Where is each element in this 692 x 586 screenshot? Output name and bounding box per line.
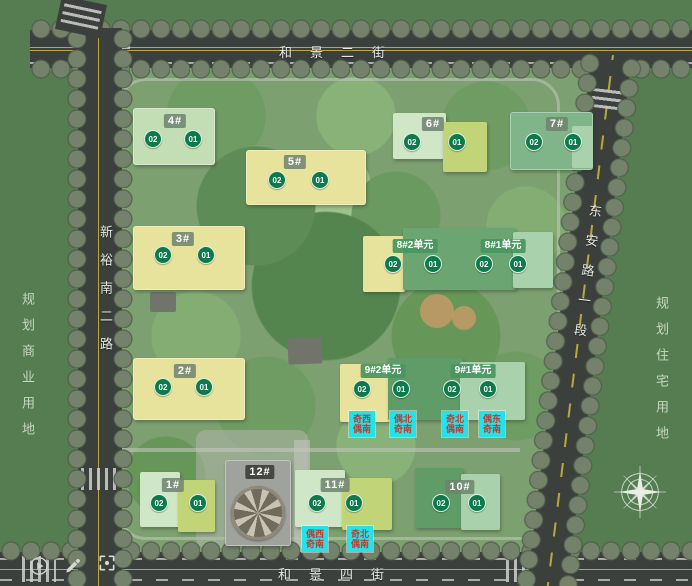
building-label: 1# (162, 478, 184, 492)
building-label: 4# (164, 114, 186, 128)
playground-area (420, 294, 454, 328)
cross-path (120, 448, 520, 452)
orientation-row: 奇北 (442, 414, 468, 424)
building-label: 5# (284, 155, 306, 169)
unit-badge[interactable]: 01 (189, 494, 207, 512)
building-label: 9#2单元 (361, 364, 406, 378)
unit-badge[interactable]: 02 (268, 171, 286, 189)
building-label: 3# (172, 232, 194, 246)
unit-badge[interactable]: 01 (195, 378, 213, 396)
unit-badge[interactable]: 02 (308, 494, 326, 512)
unit-badge[interactable]: 01 (392, 380, 410, 398)
site-plan-map: 东安路一段 和景二街 和景四街 新裕南二路 规划商业用地 规划住宅用地 4# 0… (0, 0, 692, 586)
building-3[interactable]: 3# 02 01 (133, 226, 245, 290)
fan-roof-ornament (231, 486, 285, 540)
unit-badge[interactable]: 02 (432, 494, 450, 512)
orientation-label: 偶北 奇南 (390, 411, 416, 437)
play-icon[interactable] (28, 555, 50, 577)
orientation-label: 奇北 偶南 (347, 526, 373, 552)
orientation-row: 偶南 (442, 424, 468, 434)
unit-badge[interactable]: 02 (144, 130, 162, 148)
unit-badge[interactable]: 02 (154, 246, 172, 264)
building-11[interactable]: 11# 02 01 (295, 470, 392, 530)
orientation-label: 偶东 奇南 (479, 411, 505, 437)
orientation-row: 奇北 (347, 529, 373, 539)
building-label: 8#2单元 (393, 239, 438, 253)
zone-label-commercial: 规划商业用地 (18, 292, 37, 448)
unit-badge[interactable]: 01 (184, 130, 202, 148)
building-label: 11# (321, 478, 350, 492)
building-12[interactable]: 12# (225, 460, 291, 546)
road-name-bottom: 和景四街 (278, 564, 402, 583)
building-label: 12# (245, 465, 274, 479)
orientation-label: 奇北 偶南 (442, 411, 468, 437)
unit-badge[interactable]: 01 (345, 494, 363, 512)
building-1[interactable]: 1# 02 01 (140, 472, 215, 532)
clubhouse-structure (288, 337, 323, 364)
orientation-row: 偶南 (347, 539, 373, 549)
building-label: 9#1单元 (451, 364, 496, 378)
unit-badge[interactable]: 02 (384, 255, 402, 273)
unit-badge[interactable]: 01 (468, 494, 486, 512)
pencil-icon[interactable] (62, 554, 84, 576)
orientation-row: 奇南 (302, 539, 328, 549)
orientation-row: 奇南 (479, 424, 505, 434)
unit-badge[interactable]: 02 (525, 133, 543, 151)
unit-badge[interactable]: 01 (197, 246, 215, 264)
unit-badge[interactable]: 01 (509, 255, 527, 273)
unit-badge[interactable]: 01 (448, 133, 466, 151)
playground-area-2 (452, 306, 476, 330)
building-4[interactable]: 4# 02 01 (133, 108, 215, 165)
orientation-row: 偶西 (302, 529, 328, 539)
unit-badge[interactable]: 02 (150, 494, 168, 512)
orientation-row: 偶南 (349, 424, 375, 434)
building-7[interactable]: 7# 02 01 (510, 112, 593, 170)
building-label: 2# (174, 364, 196, 378)
road-name-top: 和景二街 (279, 42, 403, 61)
unit-badge[interactable]: 01 (424, 255, 442, 273)
orientation-label: 偶西 奇南 (302, 526, 328, 552)
unit-badge[interactable]: 02 (403, 133, 421, 151)
building-10[interactable]: 10# 02 01 (415, 468, 500, 530)
unit-badge[interactable]: 01 (479, 380, 497, 398)
orientation-row: 奇西 (349, 414, 375, 424)
building-label: 6# (422, 117, 444, 131)
orientation-label: 奇西 偶南 (349, 411, 375, 437)
building-label: 8#1单元 (481, 239, 526, 253)
building-8[interactable]: 8#2单元 8#1单元 02 01 02 01 (363, 228, 553, 292)
compass-rose-icon (611, 463, 669, 526)
building-5[interactable]: 5# 02 01 (246, 150, 366, 205)
building-label: 7# (546, 117, 568, 131)
fullscreen-icon[interactable] (96, 552, 118, 574)
unit-badge[interactable]: 02 (353, 380, 371, 398)
tree-row (65, 28, 89, 586)
road-name-left: 新裕南二路 (96, 225, 115, 365)
unit-badge[interactable]: 01 (311, 171, 329, 189)
building-2[interactable]: 2# 02 01 (133, 358, 245, 420)
small-structure (150, 292, 176, 312)
crosswalk (61, 0, 103, 29)
unit-badge[interactable]: 02 (154, 378, 172, 396)
unit-badge[interactable]: 02 (443, 380, 461, 398)
building-6[interactable]: 6# 02 01 (393, 113, 487, 172)
unit-badge[interactable]: 01 (564, 133, 582, 151)
zone-label-residential: 规划住宅用地 (652, 296, 671, 452)
orientation-row: 偶东 (479, 414, 505, 424)
building-label: 10# (445, 480, 474, 494)
unit-badge[interactable]: 02 (475, 255, 493, 273)
orientation-row: 偶北 (390, 414, 416, 424)
orientation-row: 奇南 (390, 424, 416, 434)
